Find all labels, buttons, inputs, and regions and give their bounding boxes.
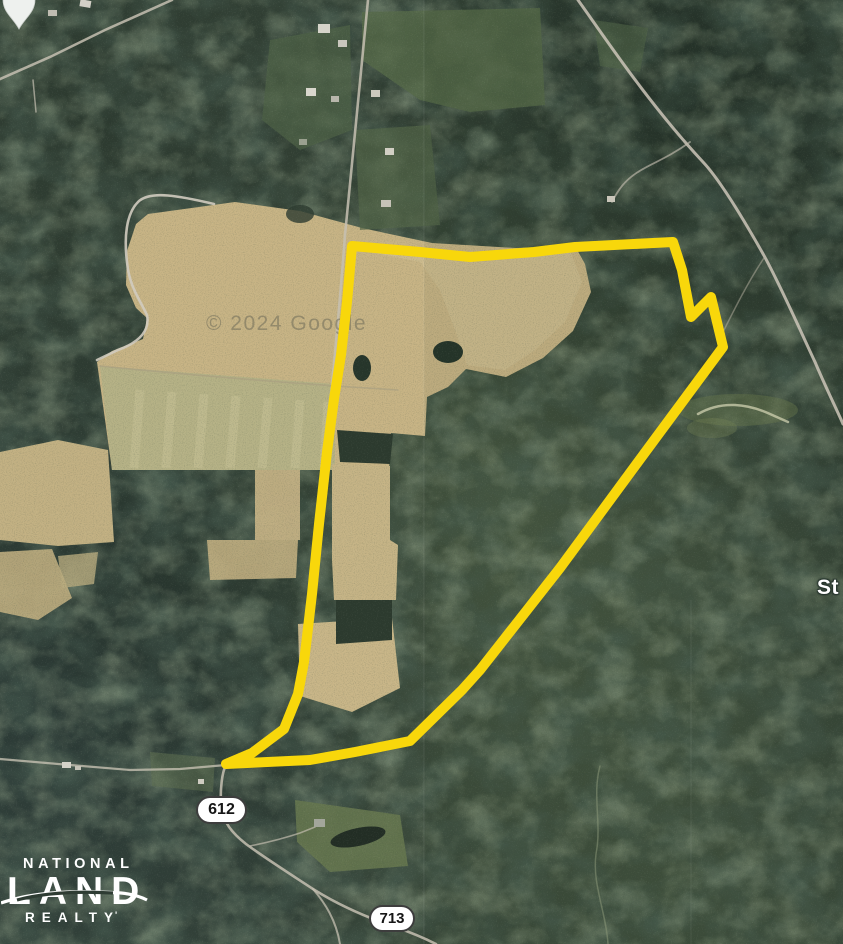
map-pin-icon[interactable] bbox=[0, 0, 41, 33]
route-shield-612: 612 bbox=[196, 796, 247, 824]
logo-land-text: LAND bbox=[7, 870, 147, 913]
route-shield-713: 713 bbox=[369, 905, 415, 932]
logo-land: LAND bbox=[7, 873, 175, 910]
satellite-imagery: © 2024 Google bbox=[0, 0, 843, 944]
route-shield-713-number: 713 bbox=[379, 910, 404, 927]
place-label: St bbox=[817, 576, 839, 600]
satellite-map[interactable]: © 2024 Google 612 713 St NATIONAL LAND R… bbox=[0, 0, 843, 944]
national-land-realty-logo: NATIONAL LAND REALTY' bbox=[0, 856, 175, 925]
route-shield-612-number: 612 bbox=[208, 801, 235, 819]
